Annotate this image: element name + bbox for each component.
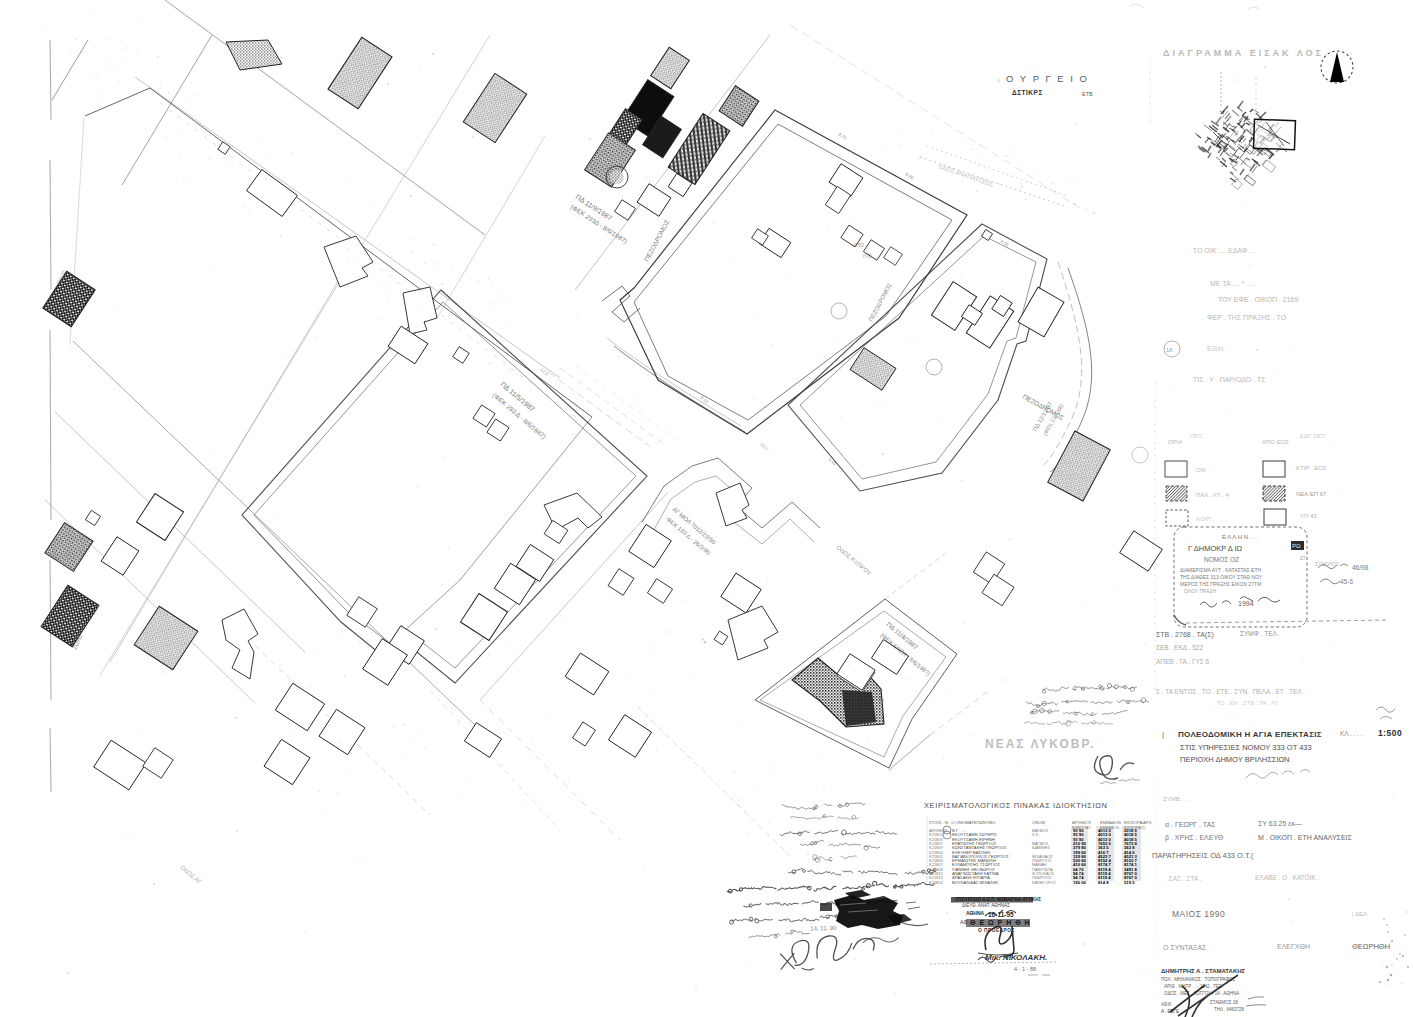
svg-text:ΠΕΡΙΟΧΗ ΔΗΜΟΥ ΒΡΙΛΗΣΣΙΩΝ: ΠΕΡΙΟΧΗ ΔΗΜΟΥ ΒΡΙΛΗΣΣΙΩΝ — [1180, 755, 1290, 764]
svg-text:ΕΤΒ: ΕΤΒ — [1082, 91, 1093, 97]
svg-text:ΣΥΜΒ . . .: ΣΥΜΒ . . . — [1163, 796, 1190, 802]
svg-text:Χ Λ .: Χ Λ . — [1032, 832, 1040, 837]
svg-text:ΟΛΟΥ ΠΡΑΞΗ: ΟΛΟΥ ΠΡΑΞΗ — [1184, 588, 1217, 594]
svg-text:ΔΗΜΗΤΡΗΣ Α . ΣΤΑΜΑΤΑΚΗΣ: ΔΗΜΗΤΡΗΣ Α . ΣΤΑΜΑΤΑΚΗΣ — [1161, 968, 1246, 974]
svg-text:Ε Λ Λ Η Ν . . .: Ε Λ Λ Η Ν . . . — [1222, 534, 1258, 540]
svg-text:ΤΙΣ . Υ . ΠΑΡ/ΟΔΟ . ΤΣ: ΤΙΣ . Υ . ΠΑΡ/ΟΔΟ . ΤΣ — [1193, 376, 1266, 383]
svg-text:ΠΡΟ: ΠΡΟ — [1190, 433, 1203, 439]
svg-text:ΥΠΟ: ΥΠΟ — [853, 242, 864, 248]
svg-text:. ΣΑΣ . ΣΤΑ .: . ΣΑΣ . ΣΤΑ . — [1165, 875, 1202, 882]
svg-text:ΔΙΑΓΡΑΜΜΑ ΕΙΣΑΚ ΛΟΣ: ΔΙΑΓΡΑΜΜΑ ΕΙΣΑΚ ΛΟΣ — [1163, 48, 1324, 58]
svg-text:4 - 1 - 88: 4 - 1 - 88 — [1014, 966, 1036, 972]
svg-text:ΧΕΙΡΙΣΜΑΤΟΛΟΓΙΚΟΣ ΠΙΝΑΚΑΣ ΙΔ: ΧΕΙΡΙΣΜΑΤΟΛΟΓΙΚΟΣ ΠΙΝΑΚΑΣ ΙΔΙΟΚΤΗΣΙΩΝ — [924, 801, 1107, 810]
svg-text:ΤΟΥ ΕΦΕ . ΟΙΚΟΠ . 2169: ΤΟΥ ΕΦΕ . ΟΙΚΟΠ . 2169 — [1218, 296, 1298, 303]
svg-text:Σ . ΤΑ ΕΝΤΟΣ . ΤΟ . ΕΤΕ . ΣΥΝ: Σ . ΤΑ ΕΝΤΟΣ . ΤΟ . ΕΤΕ . ΣΥΝ . ΠΕΛΑ . Ε… — [1156, 688, 1305, 695]
svg-text:ΣΤΙΣ ΥΠΗΡΕΣΙΕΣ ΝΟΜΟΥ 333 ΟΤ 4: ΣΤΙΣ ΥΠΗΡΕΣΙΕΣ ΝΟΜΟΥ 333 ΟΤ 433 — [1180, 743, 1312, 752]
svg-text:α . ΓΕΩΡΓ . ΤΑΣ: α . ΓΕΩΡΓ . ΤΑΣ — [1165, 821, 1216, 828]
svg-text:ΑΡΙΘ . ΜΗΤΡ . . . 1142 . ΤΕΕ: ΑΡΙΘ . ΜΗΤΡ . . . 1142 . ΤΕΕ — [1164, 984, 1222, 989]
svg-text:ΣΤΒ . 2768 . ΤΑ(Σ): ΣΤΒ . 2768 . ΤΑ(Σ) — [1156, 631, 1214, 639]
svg-text:ΑΠΕΒ . ΤΑ . ΓΥΣ 6: ΑΠΕΒ . ΤΑ . ΓΥΣ 6 — [1156, 658, 1210, 665]
svg-text:ΝΕΑ ΕΠ 67: ΝΕΑ ΕΠ 67 — [1296, 491, 1327, 497]
svg-text:ΦΕΡ . ΤΗΣ ΠΡΑΞΗΣ . ΤΟ: ΦΕΡ . ΤΗΣ ΠΡΑΞΗΣ . ΤΟ — [1207, 314, 1287, 321]
svg-text:ΠΑΛ . ΚΤ . 4: ΠΑΛ . ΚΤ . 4 — [1196, 492, 1230, 498]
svg-text:ΣΥΜΦ . ΤΕΛ .: ΣΥΜΦ . ΤΕΛ . — [1240, 630, 1280, 637]
svg-text:ΕΛΕΓΧΘΗ: ΕΛΕΓΧΘΗ — [1277, 943, 1310, 950]
svg-text:ΛΟΙΠ .: ΛΟΙΠ . — [1196, 516, 1214, 522]
svg-text:ΥΠ 43: ΥΠ 43 — [1300, 513, 1317, 519]
svg-text:1δ: 1δ — [1166, 347, 1173, 353]
svg-text:ΒΟΥΚΑΛΙΔΑΣ ΜΙΧΑΛΗΣ: ΒΟΥΚΑΛΙΔΑΣ ΜΙΧΑΛΗΣ — [952, 880, 999, 885]
svg-text:ΣΥ 63.25 εκ—: ΣΥ 63.25 εκ— — [1258, 820, 1302, 827]
svg-text:45-6: 45-6 — [1340, 578, 1353, 585]
svg-text:|: | — [1162, 730, 1164, 739]
svg-text:. . ΤΟ . ΕΝ . ΣΤΕ . ΤΑ . ΛΥ: . . ΤΟ . ΕΝ . ΣΤΕ . ΤΑ . ΛΥ — [1210, 700, 1279, 706]
svg-text:ΟΡΙΑ: ΟΡΙΑ — [1168, 439, 1182, 445]
svg-text:ΑΠΟ ΕΟΣ: ΑΠΟ ΕΟΣ — [1262, 439, 1289, 445]
svg-text:ΝΕΑΣ ΛΥΚΟΒΡ.: ΝΕΑΣ ΛΥΚΟΒΡ. — [985, 737, 1095, 751]
svg-text:ΤΗΛ . 6463728: ΤΗΛ . 6463728 — [1214, 1007, 1245, 1012]
svg-text:ΜΕ ΤΑ .... * ....: ΜΕ ΤΑ .... * .... — [1210, 280, 1255, 287]
svg-text:ΟΙΚ .: ΟΙΚ . — [1196, 467, 1210, 473]
svg-text:14. 11. 90: 14. 11. 90 — [810, 925, 837, 932]
svg-text:: . .: : . . — [1044, 90, 1052, 96]
svg-text:ΠΟΛΕΟΔΟΜΙΚΗ Η ΑΓΙΑ ΕΠΕΚΤΑΣΙ: ΠΟΛΕΟΔΟΜΙΚΗ Η ΑΓΙΑ ΕΠΕΚΤΑΣΙΣ — [1178, 730, 1322, 739]
svg-text:ΚΑΤΗΓΟΡΟΣ: ΚΑΤΗΓΟΡΟΣ — [1032, 880, 1056, 885]
svg-text:Γ ΔΗΜΟΚΡ Δ ΙΩ: Γ ΔΗΜΟΚΡ Δ ΙΩ — [1188, 544, 1243, 553]
svg-text:ΜΕΡΟΣ ΤΗΣ ΠΡΑΞΗΣ ΕΙΚΟΝ 27ΤΜ: ΜΕΡΟΣ ΤΗΣ ΠΡΑΞΗΣ ΕΙΚΟΝ 27ΤΜ — [1180, 581, 1261, 587]
svg-text:. ΤΟ ΟΙΚ .... ΕΔΑΦ ...: . ΤΟ ΟΙΚ .... ΕΔΑΦ ... — [1189, 247, 1255, 254]
svg-text:ΕΔΡ. 1977: ΕΔΡ. 1977 — [1300, 433, 1326, 439]
svg-text:ΕΛΑΒΕ . Ο . ΚΑΤΟΙΚ .: ΕΛΑΒΕ . Ο . ΚΑΤΟΙΚ . — [1255, 874, 1320, 881]
svg-text:ΡΩ: ΡΩ — [1292, 543, 1301, 549]
svg-text:ΙΩΑΝΝΗΣ: ΙΩΑΝΝΗΣ — [1032, 845, 1050, 850]
svg-text:ΠΑΡΑΤΗΡΗΣΕΙΣ ΟΔ 433 Ο.Τ.(: ΠΑΡΑΤΗΡΗΣΕΙΣ ΟΔ 433 Ο.Τ.( — [1152, 851, 1254, 860]
svg-text:ΤΗΣ ΔΙΑΘΕΣ 313 ΟΙΚΟΥ ΣΤΑΘ ΝΟ: ΤΗΣ ΔΙΑΘΕΣ 313 ΟΙΚΟΥ ΣΤΑΘ ΝΟΥ — [1180, 574, 1263, 580]
svg-text:27: 27 — [1300, 555, 1306, 561]
svg-text:1:500: 1:500 — [1378, 728, 1402, 738]
svg-text:ΟΔΟΣ . ΜΕΣ . ΛΟΓΓΟΥ . 14 . ΑΘΗ: ΟΔΟΣ . ΜΕΣ . ΛΟΓΓΟΥ . 14 . ΑΘΗΝΑ — [1164, 991, 1239, 996]
svg-text:ΣΤΟΙΧ . Ν . Ο ΟΝΟΜΑΤΕΠΩΝΥΜΟ: ΣΤΟΙΧ . Ν . Ο ΟΝΟΜΑΤΕΠΩΝΥΜΟ — [929, 820, 996, 825]
svg-text:ΔΣΤΙΚΡΣ: ΔΣΤΙΚΡΣ — [1012, 89, 1043, 96]
svg-text:1994: 1994 — [1238, 600, 1254, 607]
svg-text:ΝΟΜΟΣ ΟΖ: ΝΟΜΟΣ ΟΖ — [1204, 556, 1239, 563]
svg-text:ΥΠΟ: ΥΠΟ — [862, 254, 872, 259]
svg-text:Ο ΠΡΟΕΔΡΟΣ: Ο ΠΡΟΕΔΡΟΣ — [978, 928, 1015, 933]
svg-text:Κ21814: Κ21814 — [929, 880, 944, 885]
svg-text:46/98: 46/98 — [1352, 564, 1369, 571]
svg-text:ΔΙΑΜΕΡΙΣΜΑ ΑΥΤ . ΚΑΤΑΣΤΑΣ ΕΤ: ΔΙΑΜΕΡΙΣΜΑ ΑΥΤ . ΚΑΤΑΣΤΑΣ ΕΤΗ — [1180, 567, 1261, 573]
svg-text:| ΔΕΛ: | ΔΕΛ — [1352, 911, 1367, 917]
svg-text:ΕΙΔΗ .: ΕΙΔΗ . — [1207, 345, 1227, 352]
svg-text:Ο Υ Ρ Γ Ε Ι Ο: Ο Υ Ρ Γ Ε Ι Ο — [1006, 73, 1089, 84]
svg-text:Μ . ΟΙΚΟΠ . ΕΤΗ ΑΝΑΛΥΣΕΙΣ: Μ . ΟΙΚΟΠ . ΕΤΗ ΑΝΑΛΥΣΕΙΣ — [1258, 834, 1353, 841]
svg-text:ΑΡΙΘΜΟΣ: ΑΡΙΘΜΟΣ — [1072, 820, 1092, 825]
svg-text:. . . . . . .: . . . . . . . — [1024, 62, 1042, 68]
svg-text:ΣΤΑΘΜΟΣ 28: ΣΤΑΘΜΟΣ 28 — [1210, 1000, 1238, 1005]
svg-text:16-11-95: 16-11-95 — [988, 911, 1014, 918]
svg-text:ΑΘΗΝΑ: ΑΘΗΝΑ — [966, 910, 985, 916]
svg-text:Ο ΣΥΝΤΑΞΑΣ: Ο ΣΥΝΤΑΞΑΣ — [1163, 944, 1207, 951]
svg-text:ΕΜΒΑΔΟΝ: ΕΜΒΑΔΟΝ — [1100, 820, 1121, 825]
svg-text:ΑΦΜ: ΑΦΜ — [1161, 1002, 1171, 1007]
svg-text:ΟΝΟΜ: ΟΝΟΜ — [1032, 820, 1046, 825]
svg-text:...: ... — [1300, 658, 1305, 664]
svg-text:ΔΙΕΥΘ. ΑΝΑΤ. ΑΘΗΝΑΣ: ΔΙΕΥΘ. ΑΝΑΤ. ΑΘΗΝΑΣ — [962, 903, 1010, 908]
svg-text:ΜΑΙΟΣ 1990: ΜΑΙΟΣ 1990 — [1172, 909, 1225, 919]
svg-text:ΚΛ . . . .: ΚΛ . . . . — [1340, 730, 1363, 737]
svg-text:ΚΤΙΡ . ΕΟΣ: ΚΤΙΡ . ΕΟΣ — [1296, 465, 1327, 471]
svg-text:Μικ. ΝΙΚΟΛΑΚΗ.: Μικ. ΝΙΚΟΛΑΚΗ. — [985, 953, 1047, 962]
svg-text:·|: ·| — [996, 77, 1000, 83]
svg-text:β . ΧΡΗΣ . ΕΛΕΥΘ: β . ΧΡΗΣ . ΕΛΕΥΘ — [1165, 834, 1224, 842]
svg-text:ΕΙΣΦΟΡΑ ΑΡΧ: ΕΙΣΦΟΡΑ ΑΡΧ — [1124, 820, 1152, 825]
svg-text:ΣΕΒ . ΕΚΔ . 522: ΣΕΒ . ΕΚΔ . 522 — [1156, 644, 1203, 651]
svg-text:ΠΟΛ . ΜΗΧΑΝΙΚΟΣ . ΤΟΠΟΓΡΑΦΟΣ: ΠΟΛ . ΜΗΧΑΝΙΚΟΣ . ΤΟΠΟΓΡΑΦΟΣ — [1161, 977, 1236, 982]
